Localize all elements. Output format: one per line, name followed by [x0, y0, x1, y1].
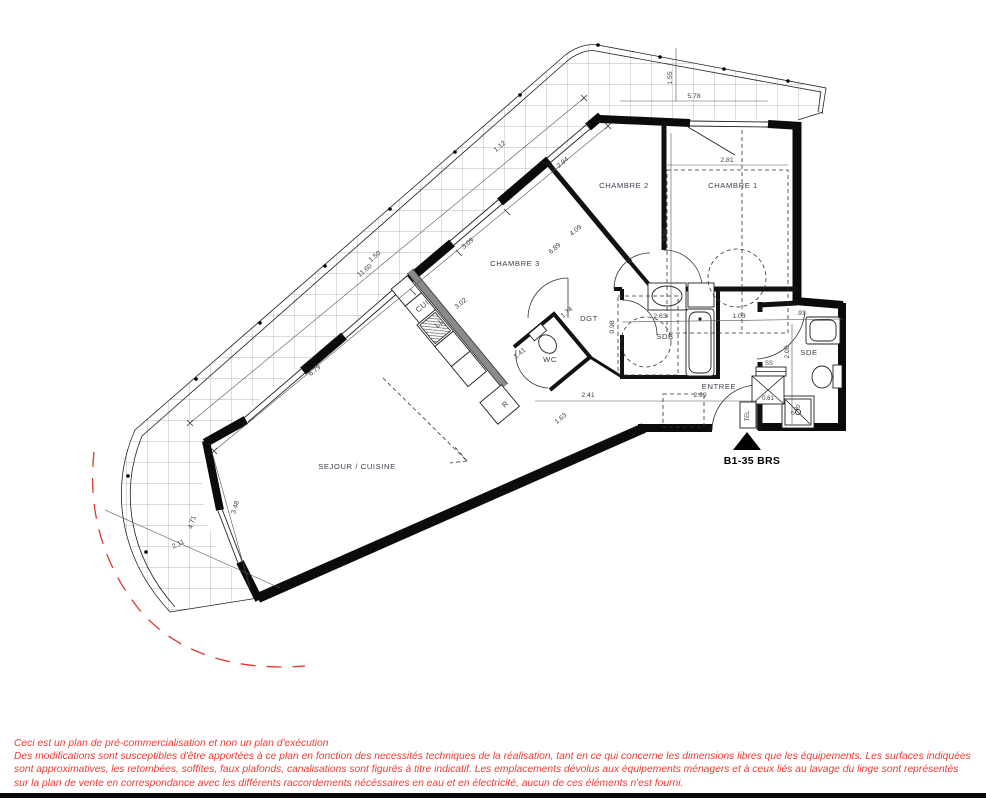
room-label-sdb: SDB: [656, 332, 673, 341]
floor-plan-page: CUI LL R: [0, 0, 986, 800]
dim-ch1-width: 2.81: [720, 157, 733, 164]
unit-label: B1-35 BRS: [724, 455, 780, 467]
room-label-tel: TEL: [745, 410, 751, 422]
disclaimer-line-4: sur la plan de vente en correspondance a…: [14, 777, 974, 790]
disclaimer-line-2: Des modifications sont susceptibles d'êt…: [14, 750, 974, 763]
disclaimer-text: Ceci est un plan de pré-commercialisatio…: [14, 737, 974, 790]
room-label-chambre1: CHAMBRE 1: [708, 181, 758, 190]
disclaimer-line-1: Ceci est un plan de pré-commercialisatio…: [14, 737, 974, 750]
room-label-ss: SS: [765, 361, 773, 367]
room-label-chambre3: CHAMBRE 3: [490, 259, 540, 268]
dim-entree-left: 2.41: [581, 392, 594, 399]
dim-entree-width: 2.99: [693, 392, 706, 399]
dim-sdb-width: 2.63: [653, 313, 666, 320]
room-label-sde: SDE: [800, 348, 817, 357]
disclaimer-line-3: sont approximatives, les retombées, soff…: [14, 763, 974, 776]
dim-ch1-depth: 3.96: [662, 228, 669, 241]
room-label-wc: WC: [543, 355, 557, 364]
room-label-sejour: SEJOUR / CUISINE: [318, 462, 396, 471]
dim-sdb-height: 0.98: [609, 320, 616, 333]
room-label-dgt: DGT: [580, 314, 598, 323]
entrance-marker: B1-35 BRS: [724, 432, 780, 467]
dim-gaine: 0.61: [762, 396, 774, 402]
dim-sdb-right: 1.03: [732, 313, 745, 320]
dim-sde-top: .93: [796, 310, 806, 317]
room-label-chambre2: CHAMBRE 2: [599, 181, 649, 190]
dim-sde-depth: 2.00: [784, 345, 791, 358]
dim-balcony-top-depth: 1.55: [667, 71, 674, 84]
entrance-triangle-icon: [733, 432, 761, 450]
floor-plan-drawing: CUI LL R: [0, 0, 986, 800]
dim-balcony-top-len: 5.78: [687, 93, 700, 100]
room-label-entree: ENTREE: [702, 382, 736, 391]
bottom-border-bar: [0, 793, 986, 798]
